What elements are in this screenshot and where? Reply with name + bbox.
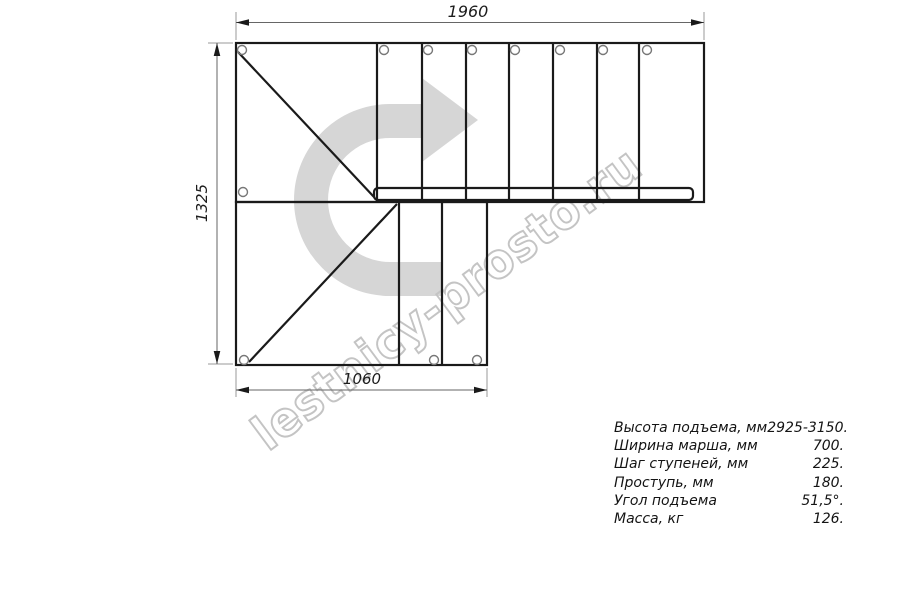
spec-label: Шаг ступеней, мм [614,455,748,473]
hole-icon [643,46,652,55]
hole-icon [424,46,433,55]
spec-value: 700. [813,437,844,455]
dimension-left-label: 1325 [193,184,211,222]
hole-icon [473,356,482,365]
spec-value: 225. [813,455,844,473]
hole-icon [430,356,439,365]
page: { "drawing": { "title_hint": "staircase-… [0,0,900,600]
spec-value: 2925-3150. [767,419,848,437]
spec-table: Высота подъема, мм 2925-3150. Ширина мар… [614,419,844,528]
spec-label: Ширина марша, мм [614,437,758,455]
spec-label: Высота подъема, мм [614,419,767,437]
hole-icon [511,46,520,55]
hole-icon [556,46,565,55]
dimension-bottom-label: 1060 [343,370,381,388]
hole-icon [468,46,477,55]
dimension-top-label: 1960 [448,2,489,21]
spec-row-height: Высота подъема, мм 2925-3150. [614,419,844,437]
hole-icon [238,46,247,55]
spec-label: Масса, кг [614,510,683,528]
hole-icon [240,356,249,365]
spec-value: 126. [813,510,844,528]
dimension-left: 1325 [193,43,233,364]
hole-icon [380,46,389,55]
hole-icon [599,46,608,55]
spec-row-mass: Масса, кг 126. [614,510,844,528]
spec-value: 180. [813,474,844,492]
spec-value: 51,5°. [801,492,844,510]
spec-label: Угол подъема [614,492,717,510]
spec-row-tread: Проступь, мм 180. [614,474,844,492]
spec-label: Проступь, мм [614,474,714,492]
spec-row-march-width: Ширина марша, мм 700. [614,437,844,455]
spec-row-angle: Угол подъема 51,5°. [614,492,844,510]
spec-row-step-pitch: Шаг ступеней, мм 225. [614,455,844,473]
hole-icon [239,188,248,197]
dimension-top: 1960 [236,2,704,40]
